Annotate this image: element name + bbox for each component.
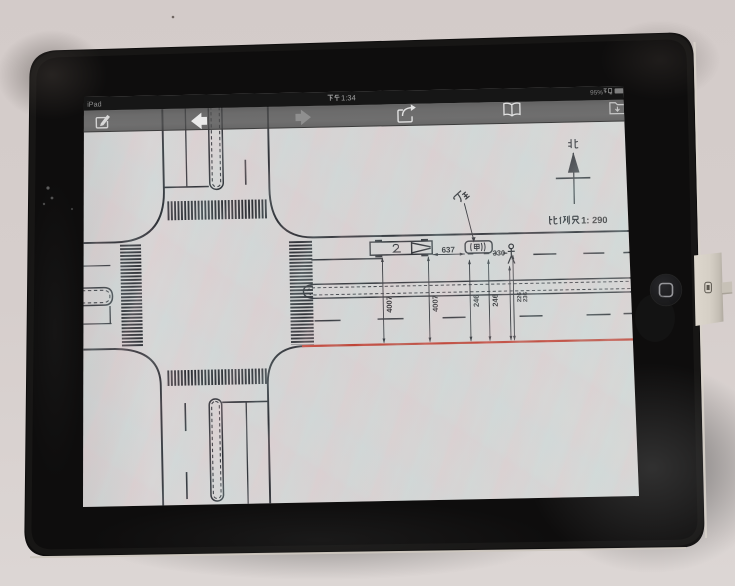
svg-text:iPad: iPad	[87, 99, 102, 108]
svg-text:95%: 95%	[590, 89, 603, 96]
svg-text:1:34: 1:34	[341, 93, 356, 102]
